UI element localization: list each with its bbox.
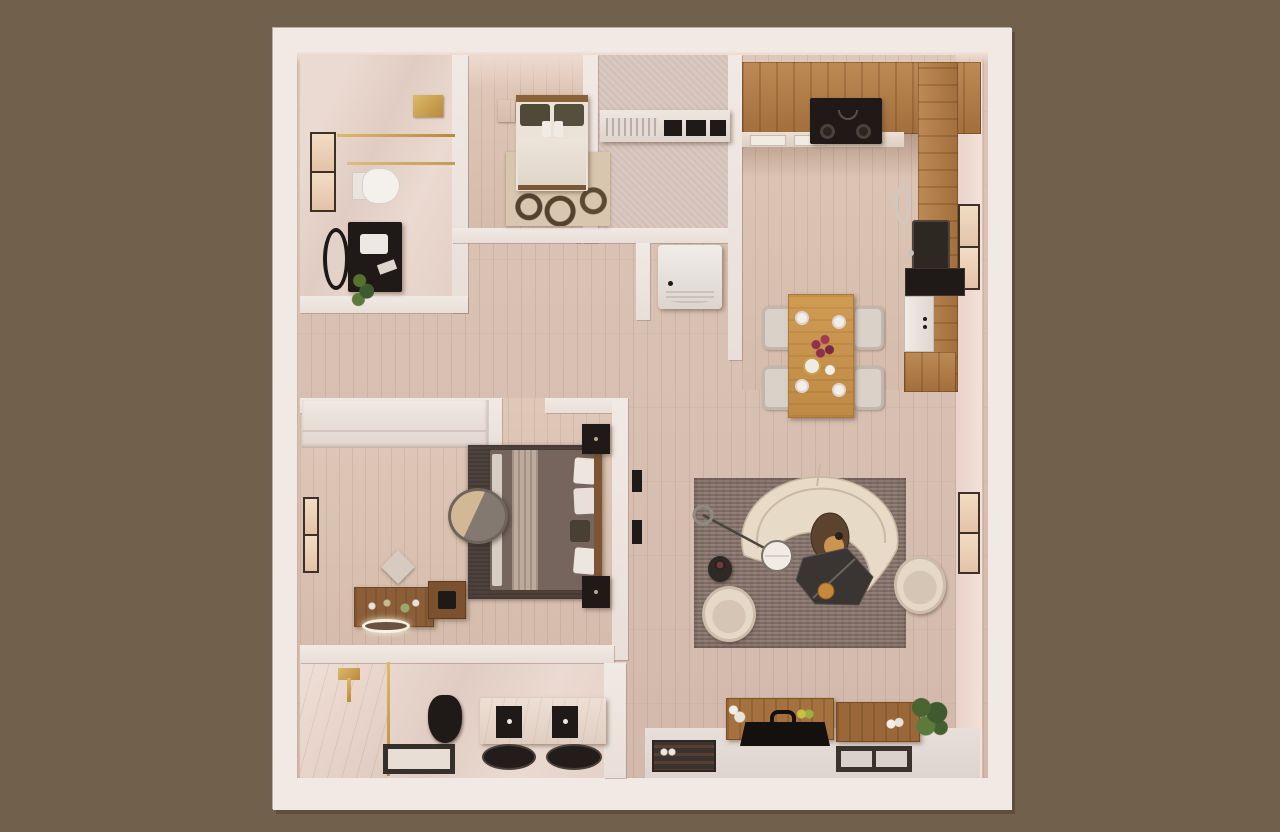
hood-curve xyxy=(838,110,858,120)
headboard-master xyxy=(594,450,602,590)
wall-nook-left xyxy=(636,243,650,320)
tv-screen xyxy=(740,722,830,746)
window-pane xyxy=(312,134,334,171)
hall-wall-art xyxy=(632,520,642,544)
vanity-master xyxy=(480,698,606,744)
toilet-guest xyxy=(352,168,398,202)
pillow-white xyxy=(554,121,563,137)
shoes xyxy=(660,748,676,756)
vessel-sink xyxy=(546,744,602,770)
toilet-bowl xyxy=(362,168,400,204)
wall-bath-guest-bottom xyxy=(300,296,468,313)
window-bath-guest xyxy=(310,132,336,212)
wall-laundry-kitchen xyxy=(728,55,742,360)
dishwasher xyxy=(904,296,934,352)
coffee-table-marble xyxy=(796,548,873,605)
decor-vases-white xyxy=(728,704,746,724)
vent-grille xyxy=(606,118,658,136)
plant-guest xyxy=(350,268,374,310)
teapot xyxy=(825,365,835,375)
render-canvas xyxy=(0,0,1280,832)
serving-dish xyxy=(803,357,821,375)
vessel-sink xyxy=(482,744,536,770)
nightstand-master xyxy=(582,424,610,454)
wardrobe xyxy=(302,400,489,448)
bed-small xyxy=(516,95,588,191)
laundry-counter xyxy=(600,110,730,142)
vanity-towel xyxy=(377,259,397,275)
faucet-dot xyxy=(563,719,568,724)
window-pane xyxy=(305,536,317,571)
faucet xyxy=(908,250,914,256)
shower-pipe-gold xyxy=(347,678,351,702)
window-pane xyxy=(960,494,978,532)
dishwasher-knob xyxy=(923,317,927,321)
cooktop-hood xyxy=(810,98,882,144)
floor-plan xyxy=(273,28,1012,810)
wall-master-right xyxy=(612,398,628,660)
vanity-faucet-panel xyxy=(496,706,522,738)
wall-master-top-right xyxy=(545,398,612,413)
decor-lemons xyxy=(796,708,814,720)
plate xyxy=(795,379,809,393)
wall-laundry-bottom xyxy=(575,228,740,243)
washing-machine xyxy=(658,245,722,309)
window-pane xyxy=(960,206,978,246)
faucet-dot xyxy=(507,719,512,724)
sofa-group xyxy=(673,458,993,668)
washer-drum-lines xyxy=(666,289,714,303)
hall-wall-art xyxy=(632,470,642,492)
knob xyxy=(594,437,598,441)
bedroom-small-wallface xyxy=(468,55,583,91)
wall-bath-guest-right xyxy=(452,55,468,313)
foot-bench xyxy=(518,185,586,190)
plate xyxy=(795,311,809,325)
wardrobe-shelf-line xyxy=(302,430,488,432)
knob xyxy=(594,590,598,594)
shower-rail-gold-1 xyxy=(337,134,455,137)
appliance-front xyxy=(710,120,726,136)
dresser-panel xyxy=(438,591,456,609)
nightstand-small-bedroom xyxy=(497,100,515,122)
pillow-white xyxy=(542,121,551,137)
kitchen-cabinet-lower xyxy=(904,352,956,392)
window-pane xyxy=(305,499,317,534)
headboard xyxy=(516,95,588,102)
shower-head-gold xyxy=(413,95,443,117)
wall-bath-master-right xyxy=(604,663,626,778)
dish-on-counter xyxy=(895,184,911,224)
window-pane xyxy=(960,534,978,572)
mirror-round-guest xyxy=(323,228,349,290)
gold-bowl xyxy=(818,583,834,599)
dining-chair xyxy=(852,366,884,410)
right-wall-face xyxy=(956,62,982,778)
nightstand-master xyxy=(582,576,610,608)
wall-master-bottom xyxy=(300,645,614,663)
plate xyxy=(832,315,846,329)
doormat-framed xyxy=(836,746,912,772)
pillow-dark xyxy=(570,520,590,542)
wall-bedroom-small-bottom xyxy=(452,228,580,243)
ottoman-decor xyxy=(835,532,843,540)
vanity-sink xyxy=(360,234,388,254)
tv-handle xyxy=(770,710,796,724)
houseplant xyxy=(906,690,950,740)
dishwasher-knob xyxy=(923,325,927,329)
doormat-dark xyxy=(652,740,716,772)
plate xyxy=(832,383,846,397)
blanket-band xyxy=(512,450,538,590)
window-pane xyxy=(312,173,334,210)
dining-chair xyxy=(852,306,884,350)
appliance-front xyxy=(686,120,706,136)
duvet xyxy=(518,139,586,185)
appliance-front xyxy=(664,120,682,136)
washer-knob xyxy=(668,281,673,286)
decor-white-right xyxy=(885,716,905,732)
burner xyxy=(856,124,871,139)
dining-table xyxy=(788,294,854,418)
window-living xyxy=(958,492,980,574)
dresser-small xyxy=(428,581,466,619)
vanity-faucet-panel xyxy=(552,706,578,738)
counter-module xyxy=(750,135,786,146)
lit-round-tray xyxy=(362,619,410,633)
window-master xyxy=(303,497,319,573)
papasan-chair xyxy=(448,488,508,544)
shower-tray xyxy=(383,744,455,774)
toilet-black xyxy=(428,695,462,743)
wall-oven xyxy=(905,268,965,296)
dresser-decor xyxy=(363,596,423,616)
burner xyxy=(820,124,835,139)
shower-rail-gold-2 xyxy=(347,162,455,165)
